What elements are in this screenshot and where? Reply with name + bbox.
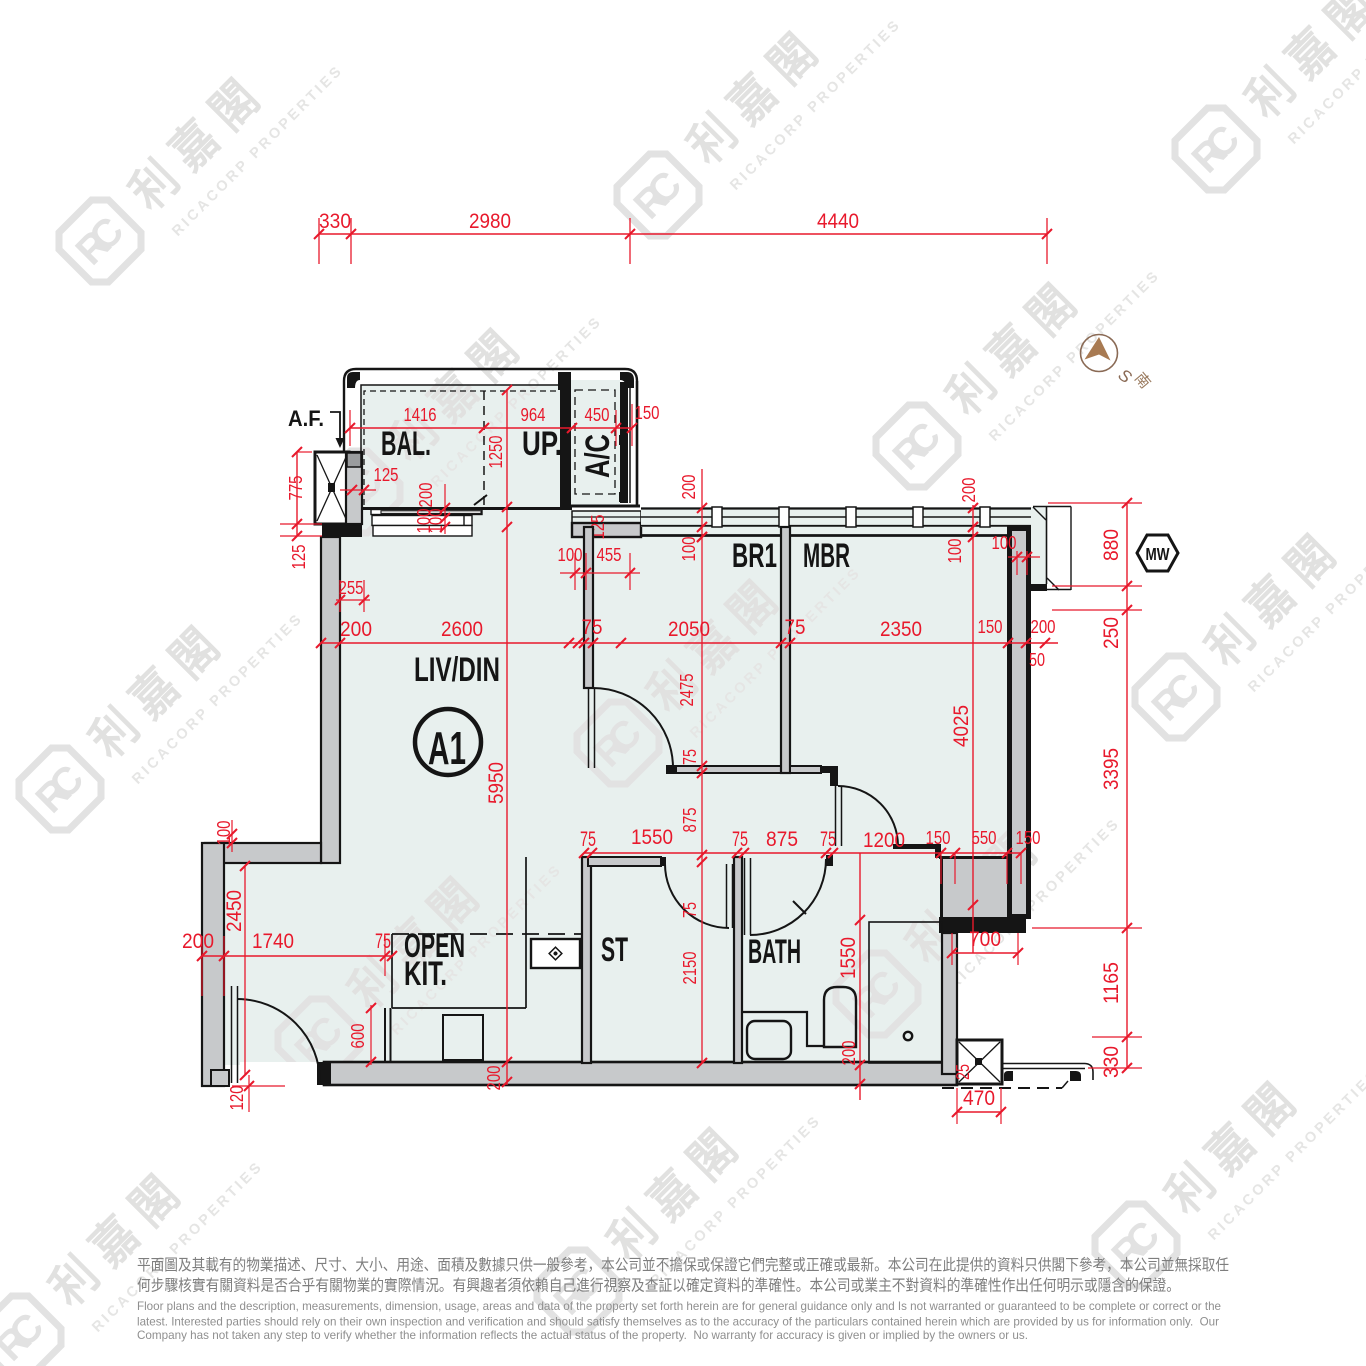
svg-text:550: 550 xyxy=(972,828,997,848)
svg-text:120: 120 xyxy=(227,1086,247,1111)
svg-text:UP.: UP. xyxy=(522,425,562,463)
svg-text:2050: 2050 xyxy=(668,618,710,641)
svg-text:平面圖及其載有的物業描述、尺寸、大小、用途、面積及數據只供一: 平面圖及其載有的物業描述、尺寸、大小、用途、面積及數據只供一般參考，本公司並不擔… xyxy=(137,1256,1229,1274)
svg-text:470: 470 xyxy=(963,1087,995,1110)
svg-text:50: 50 xyxy=(1029,650,1045,670)
svg-text:600: 600 xyxy=(348,1024,368,1049)
svg-text:A1: A1 xyxy=(428,722,466,774)
svg-text:150: 150 xyxy=(926,828,951,848)
svg-text:Company has not taken any step: Company has not taken any step to verify… xyxy=(137,1328,1028,1342)
svg-text:875: 875 xyxy=(680,808,700,833)
svg-text:200: 200 xyxy=(959,478,979,503)
svg-text:ST: ST xyxy=(601,931,628,969)
svg-text:BR1: BR1 xyxy=(732,537,777,575)
svg-text:A.F.: A.F. xyxy=(288,406,324,431)
svg-text:5950: 5950 xyxy=(485,762,508,804)
svg-text:200: 200 xyxy=(340,618,372,641)
svg-text:775: 775 xyxy=(286,476,306,501)
svg-text:KIT.: KIT. xyxy=(404,955,447,993)
svg-text:latest. Interested parties sho: latest. Interested parties should rely o… xyxy=(137,1315,1219,1329)
svg-text:1740: 1740 xyxy=(252,930,294,953)
svg-text:255: 255 xyxy=(339,578,364,598)
svg-text:75: 75 xyxy=(582,616,603,639)
svg-text:100: 100 xyxy=(679,537,699,562)
svg-text:250: 250 xyxy=(1100,617,1123,649)
svg-text:150: 150 xyxy=(1016,828,1041,848)
svg-text:1165: 1165 xyxy=(1100,962,1123,1004)
svg-text:200: 200 xyxy=(839,1041,859,1066)
svg-text:Floor plans and the descriptio: Floor plans and the description, measure… xyxy=(137,1299,1221,1313)
svg-text:100: 100 xyxy=(558,545,583,565)
svg-text:MW: MW xyxy=(1146,544,1170,564)
svg-text:200: 200 xyxy=(416,483,436,508)
svg-text:200: 200 xyxy=(484,1066,504,1091)
svg-text:1250: 1250 xyxy=(486,436,506,469)
svg-text:100: 100 xyxy=(945,539,965,564)
svg-text:25: 25 xyxy=(953,1064,973,1080)
svg-text:964: 964 xyxy=(521,405,546,425)
svg-text:75: 75 xyxy=(732,828,748,851)
svg-text:150: 150 xyxy=(978,617,1003,637)
svg-text:1416: 1416 xyxy=(404,405,437,425)
svg-text:2350: 2350 xyxy=(880,618,922,641)
svg-text:BAL.: BAL. xyxy=(381,425,431,463)
svg-text:200: 200 xyxy=(182,930,214,953)
svg-text:75: 75 xyxy=(680,749,700,765)
svg-text:75: 75 xyxy=(680,902,700,918)
svg-text:BATH: BATH xyxy=(748,933,801,971)
svg-text:700: 700 xyxy=(969,928,1001,951)
svg-text:MBR: MBR xyxy=(803,537,850,575)
svg-text:4025: 4025 xyxy=(950,705,973,747)
svg-text:75: 75 xyxy=(375,930,391,953)
svg-text:何步驟核實有關資料是否合乎有關物業的實際情況。有興趣者須依賴: 何步驟核實有關資料是否合乎有關物業的實際情況。有興趣者須依賴自己進行視察及查証以… xyxy=(137,1276,1180,1295)
svg-text:880: 880 xyxy=(1100,529,1123,561)
svg-text:330: 330 xyxy=(1100,1046,1123,1078)
svg-text:455: 455 xyxy=(597,545,622,565)
svg-text:3395: 3395 xyxy=(1100,748,1123,790)
svg-text:875: 875 xyxy=(766,828,798,851)
svg-text:75: 75 xyxy=(580,828,596,851)
svg-text:LIV/DIN: LIV/DIN xyxy=(414,651,500,689)
svg-text:1200: 1200 xyxy=(863,829,905,852)
svg-text:330: 330 xyxy=(319,210,351,233)
svg-text:75: 75 xyxy=(820,828,836,851)
svg-text:150: 150 xyxy=(635,403,660,423)
svg-text:125: 125 xyxy=(374,465,399,485)
svg-text:4440: 4440 xyxy=(817,210,859,233)
svg-text:2980: 2980 xyxy=(469,210,511,233)
svg-text:200: 200 xyxy=(1031,617,1056,637)
svg-text:2600: 2600 xyxy=(441,618,483,641)
svg-text:2150: 2150 xyxy=(680,952,700,985)
svg-text:100: 100 xyxy=(992,533,1017,553)
svg-text:200: 200 xyxy=(679,475,699,500)
svg-text:2475: 2475 xyxy=(677,674,697,707)
svg-text:100: 100 xyxy=(214,821,234,846)
svg-text:75: 75 xyxy=(785,616,806,639)
svg-text:A/C: A/C xyxy=(579,434,617,478)
svg-text:100: 100 xyxy=(426,509,446,534)
svg-text:S: S xyxy=(1115,365,1136,387)
svg-text:1550: 1550 xyxy=(631,826,673,849)
svg-text:1550: 1550 xyxy=(837,937,860,979)
svg-text:450: 450 xyxy=(585,405,610,425)
svg-text:2450: 2450 xyxy=(223,890,246,932)
svg-text:125: 125 xyxy=(289,545,309,570)
